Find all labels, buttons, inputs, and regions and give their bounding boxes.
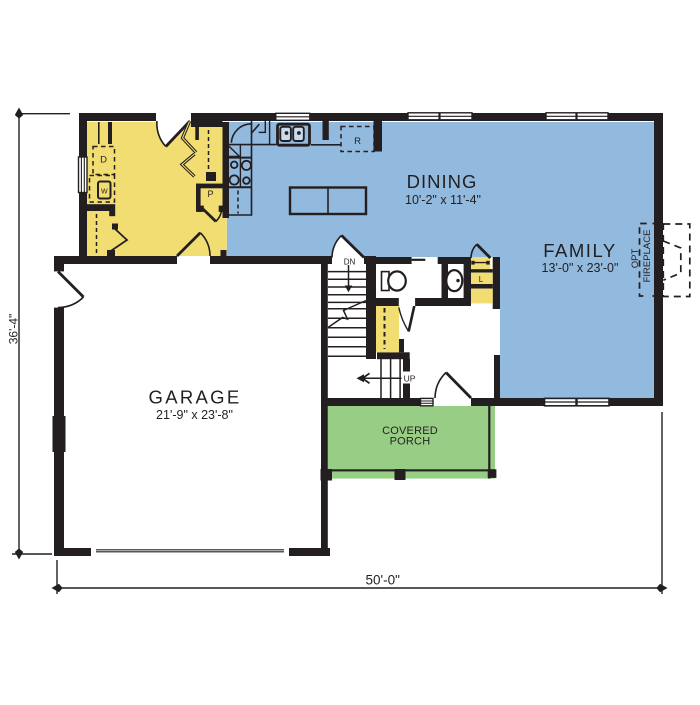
svg-text:FIREPLACE: FIREPLACE (642, 230, 653, 283)
svg-text:50'-0": 50'-0" (366, 573, 401, 588)
svg-text:D: D (100, 155, 107, 166)
svg-text:21'-9" x 23'-8": 21'-9" x 23'-8" (156, 408, 233, 422)
svg-text:DN: DN (344, 258, 356, 267)
svg-text:10'-2" x 11'-4": 10'-2" x 11'-4" (405, 193, 481, 207)
svg-text:DINING: DINING (407, 171, 478, 192)
svg-text:UP: UP (404, 374, 416, 384)
svg-text:R: R (354, 136, 361, 147)
svg-text:GARAGE: GARAGE (149, 387, 242, 408)
svg-text:36'-4": 36'-4" (7, 314, 21, 345)
svg-text:W: W (101, 189, 108, 196)
svg-text:FAMILY: FAMILY (543, 240, 616, 261)
svg-text:L: L (479, 275, 484, 284)
svg-text:PORCH: PORCH (390, 435, 431, 447)
svg-text:13'-0" x 23'-0": 13'-0" x 23'-0" (542, 261, 619, 275)
svg-text:P: P (207, 189, 213, 199)
svg-text:OPT: OPT (630, 249, 641, 269)
